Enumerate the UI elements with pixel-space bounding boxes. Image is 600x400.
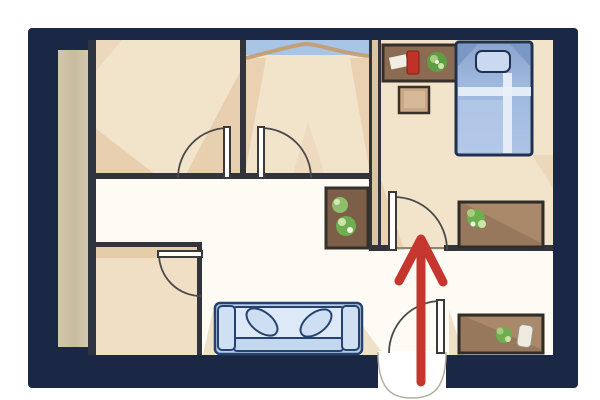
sideboard-upper-plant-leaf bbox=[478, 220, 486, 228]
bed-cross-horizontal bbox=[458, 87, 531, 96]
side-stool bbox=[399, 87, 429, 113]
wall-bathroom-right bbox=[197, 242, 202, 355]
entry-door-leaf bbox=[437, 300, 444, 353]
dresser-red-box bbox=[407, 51, 419, 74]
sofa-arm-right bbox=[342, 306, 359, 350]
bathroom-floor bbox=[95, 245, 202, 355]
bathroom-door-leaf bbox=[158, 251, 202, 257]
bedroom-door-leaf bbox=[389, 192, 396, 250]
sideboard-upper bbox=[459, 202, 543, 247]
wall-left bbox=[88, 40, 96, 355]
wall-room1-room2 bbox=[240, 40, 246, 178]
bed-pillow bbox=[476, 51, 510, 72]
hall-cabinet-plant-leaf bbox=[334, 199, 340, 205]
wall-bathroom-top bbox=[95, 242, 202, 247]
sofa-back bbox=[234, 338, 343, 351]
hall-cabinet-plant bbox=[336, 216, 356, 236]
sideboard-upper-plant-highlight bbox=[471, 222, 476, 227]
sideboard-lower-plant-leaf bbox=[505, 336, 511, 342]
bed bbox=[456, 42, 532, 155]
wall-room2-bedroom-right-line bbox=[378, 40, 381, 250]
wall-hallway-top bbox=[95, 173, 369, 179]
sideboard-lower-plant-leaf bbox=[497, 328, 504, 335]
sofa bbox=[215, 303, 362, 354]
dresser-plant-highlight bbox=[435, 60, 439, 64]
entry-outside-swing bbox=[378, 352, 446, 398]
floor-plan-canvas bbox=[0, 0, 600, 400]
hall-cabinet-plant-highlight bbox=[347, 227, 353, 233]
sofa-arm-left bbox=[218, 306, 235, 350]
bed-blanket-light bbox=[459, 100, 503, 152]
room-middle-door-leaf bbox=[258, 127, 264, 178]
hall-cabinet-plant bbox=[332, 197, 348, 213]
dresser-plant-leaf bbox=[438, 63, 444, 69]
bed-cross-vertical bbox=[503, 73, 512, 153]
sideboard-lower-vase bbox=[517, 324, 534, 348]
room-left-door-leaf bbox=[224, 127, 230, 178]
dresser bbox=[383, 45, 456, 81]
hall-cabinet bbox=[326, 188, 368, 248]
sideboard-upper-plant-leaf bbox=[467, 209, 475, 217]
sideboard-lower bbox=[459, 315, 543, 353]
balcony-strip bbox=[58, 50, 91, 347]
hall-cabinet-plant-leaf bbox=[338, 218, 346, 226]
floor-plan-illustration bbox=[0, 0, 600, 400]
stool-highlight bbox=[404, 91, 425, 108]
